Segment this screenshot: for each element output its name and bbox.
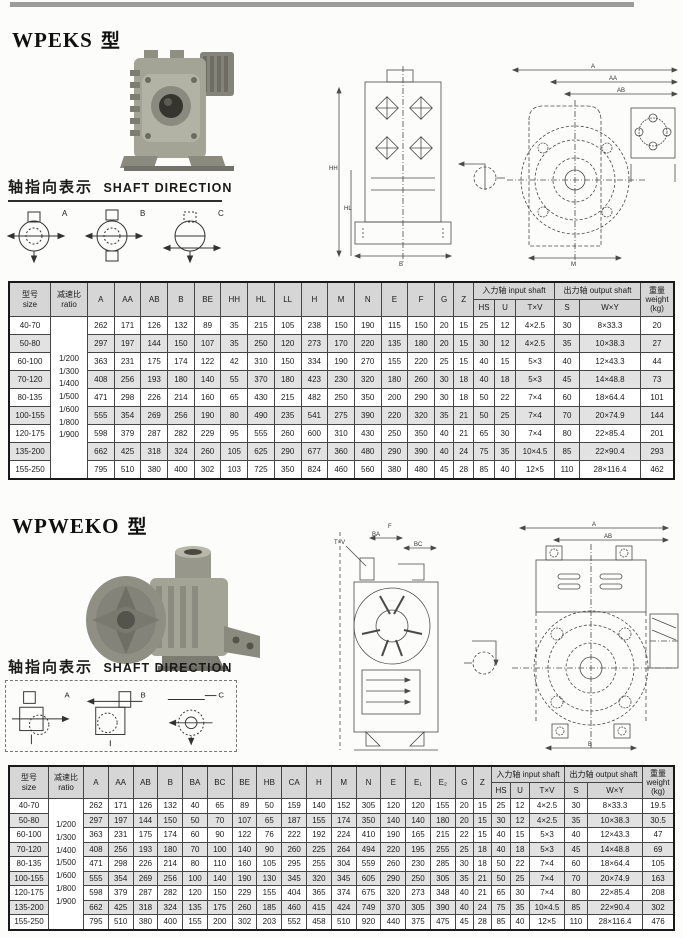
dimension-cell: 220	[354, 335, 381, 353]
dimension-cell: 605	[356, 871, 381, 886]
dimension-cell: 40	[455, 900, 473, 915]
dimension-cell: 180	[168, 371, 195, 389]
size-cell: 70-120	[9, 371, 51, 389]
dimension-cell: 20	[455, 813, 473, 828]
dimension-cell: 379	[108, 886, 133, 901]
catalog-page: WPEKS型	[0, 0, 683, 938]
dimension-cell: 482	[301, 389, 328, 407]
dimension-cell: 293	[641, 443, 675, 461]
dimension-cell: 290	[274, 443, 301, 461]
dimension-cell: 458	[307, 915, 332, 930]
dimension-cell: 208	[643, 886, 675, 901]
dimension-cell: 10×38.3	[580, 335, 641, 353]
dimension-cell: 40	[474, 371, 495, 389]
shaft-direction-sketches-wpeks: A B C	[6, 204, 234, 266]
dimension-cell: 269	[133, 871, 158, 886]
dimension-cell: 70	[183, 842, 208, 857]
dimension-cell: 126	[141, 317, 168, 335]
size-cell: 120-175	[9, 425, 51, 443]
dimension-cell: 4×2.5	[530, 799, 565, 814]
dimension-cell: 510	[331, 915, 356, 930]
dimension-cell: 45	[455, 915, 473, 930]
dimension-cell: 30	[555, 317, 580, 335]
dimension-cell: 423	[301, 371, 328, 389]
dimension-cell: 76	[257, 828, 282, 843]
dimension-cell: 560	[354, 461, 381, 480]
dimension-cell: 25	[492, 799, 511, 814]
column-header: 出力轴 output shaft	[565, 766, 643, 783]
dimension-cell: 380	[381, 461, 408, 480]
column-header: B	[168, 282, 195, 317]
dimension-cell: 35	[495, 443, 516, 461]
dimension-cell: 282	[168, 425, 195, 443]
dimension-cell: 40	[511, 915, 530, 930]
table-row: 50-8029719714415010735250120273170220135…	[9, 335, 674, 353]
column-header: Z	[454, 282, 474, 317]
dimension-cell: 180	[381, 371, 408, 389]
sketch-label: A	[64, 691, 70, 700]
dimension-cell: 60	[565, 857, 588, 872]
dimension-cell: 42	[221, 353, 248, 371]
dimension-cell: 250	[406, 871, 431, 886]
dimension-cell: 475	[430, 915, 455, 930]
dimension-cell: 297	[88, 335, 115, 353]
dimension-cell: 305	[356, 799, 381, 814]
dimension-cell: 40	[555, 353, 580, 371]
dimension-cell: 287	[141, 425, 168, 443]
dimension-cell: 5×3	[530, 828, 565, 843]
dim-label: A	[592, 522, 596, 528]
dimension-cell: 824	[301, 461, 328, 480]
dimension-cell: 110	[565, 915, 588, 930]
dimension-cell: 85	[474, 461, 495, 480]
column-header: U	[495, 300, 516, 317]
dimension-cell: 222	[282, 828, 307, 843]
column-header: W×Y	[580, 300, 641, 317]
table-row: 70-1204082561931801405537018042323032018…	[9, 371, 674, 389]
dimension-cell: 559	[356, 857, 381, 872]
shaft-direction-zh: 轴指向表示	[8, 659, 93, 676]
dimension-cell: 144	[141, 335, 168, 353]
dimension-cell: 12×43.3	[580, 353, 641, 371]
dimension-cell: 40	[492, 842, 511, 857]
dimension-cell: 7×4	[516, 425, 555, 443]
dimension-cell: 260	[381, 857, 406, 872]
dimension-cell: 471	[84, 857, 109, 872]
dimension-cell: 425	[108, 900, 133, 915]
dimension-cell: 24	[473, 900, 491, 915]
shaft-sketch-a: A	[10, 683, 80, 749]
dimension-cell: 200	[207, 915, 232, 930]
dimension-cell: 18×64.4	[588, 857, 643, 872]
dimension-cell: 25	[474, 317, 495, 335]
dimension-cell: 220	[408, 353, 435, 371]
dimension-cell: 725	[248, 461, 275, 480]
drawing-wpweko-left-view: T×V F BA BC	[332, 518, 460, 756]
dimension-cell: 80	[221, 407, 248, 425]
dimension-cell: 65	[257, 813, 282, 828]
dimension-cell: 155	[381, 353, 408, 371]
dimension-cell: 105	[643, 857, 675, 872]
column-header: HS	[492, 783, 511, 799]
dimension-cell: 20	[641, 317, 675, 335]
dimension-cell: 174	[331, 813, 356, 828]
dimension-cell: 159	[282, 799, 307, 814]
dimension-cell: 5×3	[516, 353, 555, 371]
dimension-cell: 20×74.9	[588, 871, 643, 886]
dimension-cell: 27	[641, 335, 675, 353]
column-header: CA	[282, 766, 307, 799]
dimension-cell: 50	[492, 857, 511, 872]
dimension-cell: 144	[641, 407, 675, 425]
table-row: 60-1003632311751746090122762221922244101…	[9, 828, 674, 843]
dimension-cell: 35	[221, 335, 248, 353]
dim-label: A	[591, 64, 595, 70]
table-row: 155-250795510380400155200302203552458510…	[9, 915, 674, 930]
dimension-cell: 214	[168, 389, 195, 407]
dimension-cell: 28	[454, 461, 474, 480]
dimension-cell: 7×4	[516, 389, 555, 407]
dimension-cell: 350	[354, 389, 381, 407]
dimension-cell: 231	[114, 353, 141, 371]
dimension-cell: 197	[108, 813, 133, 828]
dimension-cell: 408	[84, 842, 109, 857]
dimension-cell: 365	[307, 886, 332, 901]
table-row: 70-1204082561931807010014090260225264494…	[9, 842, 674, 857]
size-cell: 60-100	[9, 353, 51, 371]
dimension-cell: 324	[168, 443, 195, 461]
column-header: F	[408, 282, 435, 317]
dimension-cell: 80	[555, 425, 580, 443]
column-header: 重量 weight (kg)	[641, 282, 675, 317]
column-header: E₂	[430, 766, 455, 799]
dimension-cell: 30	[492, 813, 511, 828]
dim-label: AB	[604, 534, 612, 540]
dimension-cell: 65	[474, 425, 495, 443]
size-cell: 50-80	[9, 813, 49, 828]
dimension-cell: 749	[356, 900, 381, 915]
dimension-cell: 677	[301, 443, 328, 461]
dimension-cell: 324	[158, 900, 183, 915]
dimension-cell: 120	[406, 799, 431, 814]
dim-label: M	[571, 262, 576, 268]
sketch-label: B	[140, 691, 145, 700]
column-header: U	[511, 783, 530, 799]
top-divider-bar	[10, 2, 634, 7]
dimension-cell: 192	[307, 828, 332, 843]
dimension-cell: 374	[331, 886, 356, 901]
dimension-cell: 20	[434, 317, 453, 335]
dimension-cell: 460	[282, 900, 307, 915]
dimension-cell: 30	[565, 799, 588, 814]
dimension-cell: 494	[356, 842, 381, 857]
dimension-cell: 40	[455, 886, 473, 901]
size-cell: 40-70	[9, 317, 51, 335]
sketch-label: B	[140, 209, 145, 218]
dimension-cell: 187	[282, 813, 307, 828]
dimension-cell: 262	[84, 799, 109, 814]
drawing-wpeks-side-view: A AA AB M	[505, 60, 681, 268]
dimension-cell: 28×116.4	[588, 915, 643, 930]
dimension-cell: 7×4	[516, 407, 555, 425]
dimension-cell: 410	[356, 828, 381, 843]
dimension-cell: 220	[381, 407, 408, 425]
dimension-cell: 21	[454, 425, 474, 443]
dimension-cell: 22×90.4	[588, 900, 643, 915]
dimension-cell: 85	[565, 900, 588, 915]
dimension-cell: 160	[194, 389, 221, 407]
dimension-cell: 122	[232, 828, 257, 843]
dimension-cell: 22×85.4	[580, 425, 641, 443]
dimension-cell: 260	[274, 425, 301, 443]
dimension-cell: 255	[307, 857, 332, 872]
dimension-cell: 256	[114, 371, 141, 389]
dimension-cell: 370	[248, 371, 275, 389]
size-cell: 50-80	[9, 335, 51, 353]
dimension-cell: 214	[158, 857, 183, 872]
dimension-cell: 22	[511, 857, 530, 872]
dimension-cell: 21	[454, 407, 474, 425]
size-cell: 135-200	[9, 443, 51, 461]
dimension-cell: 390	[354, 407, 381, 425]
dimension-cell: 140	[381, 813, 406, 828]
dimension-cell: 40	[434, 443, 453, 461]
dimension-cell: 45	[565, 842, 588, 857]
dimension-cell: 180	[158, 842, 183, 857]
column-header: 减速比 ratio	[49, 766, 84, 799]
dimension-cell: 122	[194, 353, 221, 371]
column-header: B	[158, 766, 183, 799]
dimension-cell: 40	[495, 461, 516, 480]
dimension-cell: 105	[274, 317, 301, 335]
column-header: HL	[248, 282, 275, 317]
dimension-cell: 348	[430, 886, 455, 901]
dimension-cell: 260	[194, 443, 221, 461]
dimension-cell: 490	[248, 407, 275, 425]
column-header: H	[307, 766, 332, 799]
sketch-label: C	[218, 209, 224, 218]
dimension-cell: 152	[331, 799, 356, 814]
dimension-cell: 225	[307, 842, 332, 857]
dimension-cell: 171	[114, 317, 141, 335]
size-cell: 155-250	[9, 461, 51, 480]
size-cell: 100-155	[9, 407, 51, 425]
dimension-cell: 15	[454, 335, 474, 353]
column-header: 减速比 ratio	[51, 282, 88, 317]
dim-label: BC	[414, 542, 423, 548]
shaft-sketch-c: C	[162, 204, 234, 266]
gearbox-photo-shapes	[86, 546, 260, 671]
dimension-cell: 14×48.8	[588, 842, 643, 857]
dimension-cell: 115	[381, 317, 408, 335]
dimension-cell: 404	[282, 886, 307, 901]
dimension-cell: 20	[455, 799, 473, 814]
dimension-cell: 400	[168, 461, 195, 480]
dimension-cell: 165	[406, 828, 431, 843]
column-header: AA	[114, 282, 141, 317]
size-cell: 155-250	[9, 915, 49, 930]
dimension-cell: 135	[381, 335, 408, 353]
dimension-cell: 250	[381, 425, 408, 443]
shaft-sketch-b: B	[84, 204, 156, 266]
dimension-cell: 80	[565, 886, 588, 901]
shaft-direction-zh: 轴指向表示	[8, 179, 93, 196]
dimension-cell: 250	[248, 335, 275, 353]
dimension-cell: 310	[248, 353, 275, 371]
dimension-cell: 235	[274, 407, 301, 425]
dimension-cell: 30	[511, 886, 530, 901]
dim-label: B	[399, 262, 403, 268]
dimension-cell: 360	[328, 443, 355, 461]
shaft-direction-sketches-wpweko: A B C	[5, 680, 237, 752]
dimension-cell: 795	[88, 461, 115, 480]
dimension-cell: 73	[641, 371, 675, 389]
ratio-cell: 1/200 1/300 1/400 1/500 1/600 1/800 1/90…	[49, 799, 84, 930]
dimension-cell: 50	[183, 813, 208, 828]
column-header: BC	[207, 766, 232, 799]
dimension-cell: 120	[183, 886, 208, 901]
dimension-cell: 476	[643, 915, 675, 930]
dim-label: BA	[372, 532, 380, 538]
dimension-cell: 175	[207, 900, 232, 915]
dimension-cell: 5×3	[530, 842, 565, 857]
dimension-cell: 175	[133, 828, 158, 843]
dimension-cell: 310	[328, 425, 355, 443]
dimension-cell: 107	[194, 335, 221, 353]
dimension-cell: 290	[381, 443, 408, 461]
dimension-cell: 174	[158, 828, 183, 843]
dimension-cell: 215	[248, 317, 275, 335]
size-cell: 80-135	[9, 389, 51, 407]
dimension-cell: 320	[408, 407, 435, 425]
dimension-cell: 30	[455, 857, 473, 872]
column-header: E	[381, 766, 406, 799]
dimension-cell: 390	[430, 900, 455, 915]
dimension-cell: 180	[408, 335, 435, 353]
dimension-cell: 70	[565, 871, 588, 886]
shaft-direction-heading-wpeks: 轴指向表示 SHAFT DIRECTION	[8, 176, 232, 197]
dimension-cell: 285	[430, 857, 455, 872]
dimension-cell: 304	[331, 857, 356, 872]
dimension-cell: 12	[495, 335, 516, 353]
dimension-cell: 190	[328, 353, 355, 371]
column-header: G	[434, 282, 453, 317]
column-header: AA	[108, 766, 133, 799]
dimension-cell: 35	[555, 335, 580, 353]
dimension-cell: 35	[565, 813, 588, 828]
dimension-cell: 224	[331, 828, 356, 843]
dimension-cell: 30	[474, 335, 495, 353]
dimension-cell: 150	[158, 813, 183, 828]
dim-label: T×V	[334, 540, 345, 546]
dimension-cell: 229	[194, 425, 221, 443]
dimension-cell: 256	[168, 407, 195, 425]
dimension-cell: 264	[331, 842, 356, 857]
dimension-cell: 180	[274, 371, 301, 389]
dimension-cell: 15	[473, 799, 491, 814]
dimension-cell: 662	[88, 443, 115, 461]
dimension-cell: 7×4	[530, 886, 565, 901]
dimension-cell: 12	[511, 799, 530, 814]
dimension-cell: 150	[207, 886, 232, 901]
sketch-label: A	[62, 209, 68, 218]
table-row: 120-175598379287282120150229155404365374…	[9, 886, 674, 901]
dimension-cell: 262	[88, 317, 115, 335]
dimension-cell: 21	[473, 886, 491, 901]
product-photo-wpeks	[100, 36, 250, 179]
dimension-cell: 12	[511, 813, 530, 828]
dimension-cell: 107	[232, 813, 257, 828]
dimension-cell: 50	[492, 871, 511, 886]
dimension-cell: 250	[328, 389, 355, 407]
dimension-cell: 89	[232, 799, 257, 814]
dimension-cell: 440	[381, 915, 406, 930]
column-header: S	[555, 300, 580, 317]
dimension-cell: 215	[274, 389, 301, 407]
dimension-cell: 85	[555, 443, 580, 461]
dimension-cell: 12×5	[516, 461, 555, 480]
dimension-cell: 89	[194, 317, 221, 335]
dimension-cell: 380	[141, 461, 168, 480]
dimension-cell: 598	[84, 886, 109, 901]
size-cell: 100-155	[9, 871, 49, 886]
dimension-cell: 318	[141, 443, 168, 461]
shaft-sketch-b: B	[86, 683, 156, 749]
dimension-cell: 105	[257, 857, 282, 872]
dimension-cell: 21	[473, 871, 491, 886]
table-row: 80-1354712982262141606543021548225035020…	[9, 389, 674, 407]
dimension-cell: 163	[643, 871, 675, 886]
shaft-sketch-c: C	[162, 683, 232, 749]
dimension-cell: 345	[331, 871, 356, 886]
dimension-cell: 19.5	[643, 799, 675, 814]
dimension-cell: 70	[207, 813, 232, 828]
column-header: HB	[257, 766, 282, 799]
dimension-cell: 10×38.3	[588, 813, 643, 828]
dimension-cell: 30	[434, 371, 453, 389]
dimension-cell: 30.5	[643, 813, 675, 828]
dimension-cell: 282	[158, 886, 183, 901]
dimension-cell: 180	[430, 813, 455, 828]
dimension-cell: 60	[183, 828, 208, 843]
dim-label: B	[588, 742, 592, 748]
shaft-direction-en: SHAFT DIRECTION	[103, 181, 232, 195]
dim-label: HH	[329, 166, 338, 172]
dimension-cell: 354	[108, 871, 133, 886]
dimension-cell: 100	[207, 842, 232, 857]
dimension-cell: 155	[307, 813, 332, 828]
dimension-cell: 160	[232, 857, 257, 872]
dimension-cell: 140	[232, 842, 257, 857]
shaft-direction-heading-wpweko: 轴指向表示 SHAFT DIRECTION	[8, 656, 232, 677]
dimension-cell: 260	[408, 371, 435, 389]
dimension-table-wpweko: 型号 size减速比 ratioAAAABBBABCBEHBCAHMNEE₁E₂…	[8, 765, 675, 931]
dimension-cell: 15	[454, 353, 474, 371]
dimension-cell: 415	[307, 900, 332, 915]
dimension-cell: 229	[232, 886, 257, 901]
dimension-cell: 22×90.4	[580, 443, 641, 461]
dimension-cell: 425	[114, 443, 141, 461]
dimension-cell: 25	[455, 842, 473, 857]
dimension-cell: 190	[354, 317, 381, 335]
dimension-cell: 295	[282, 857, 307, 872]
column-header: 型号 size	[9, 766, 49, 799]
dimension-cell: 150	[274, 353, 301, 371]
dimension-cell: 30	[434, 389, 453, 407]
dimension-cell: 480	[408, 461, 435, 480]
dimension-cell: 4×2.5	[516, 317, 555, 335]
dimension-cell: 920	[356, 915, 381, 930]
